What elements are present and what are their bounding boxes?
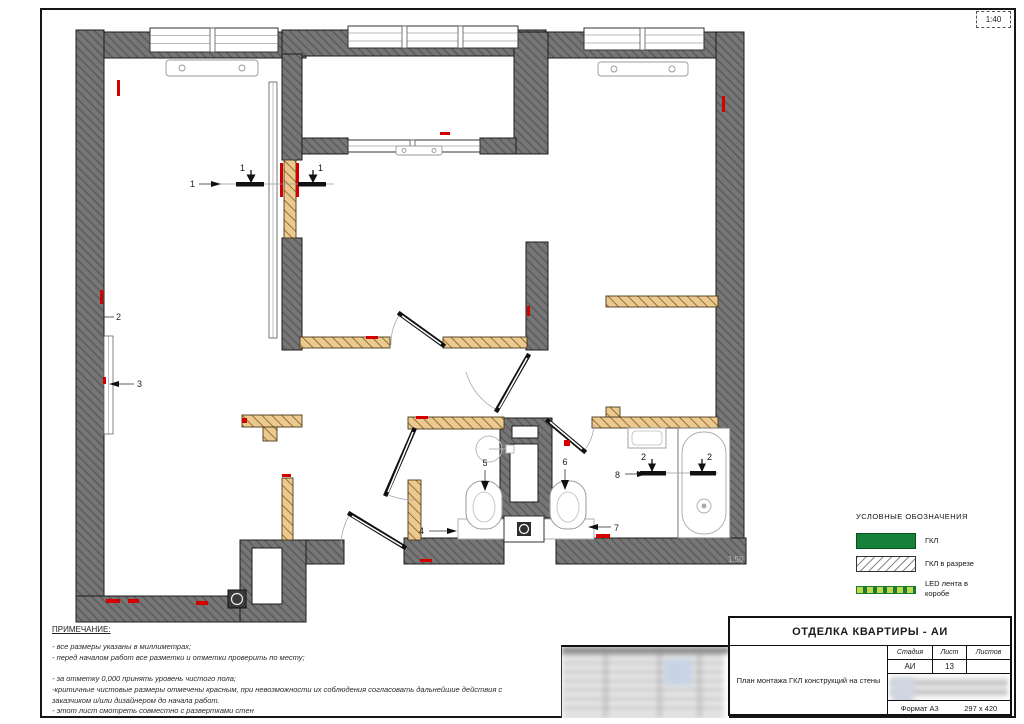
led-strip-swatch xyxy=(856,586,916,594)
legend-item-led: LED лента в коробе xyxy=(856,579,1012,599)
note-line: - перед началом работ все разметки и отм… xyxy=(52,653,522,664)
gkl-swatch xyxy=(856,533,916,549)
notes: ПРИМЕЧАНИЕ: - все размеры указаны в милл… xyxy=(52,625,522,717)
project-title: ОТДЕЛКА КВАРТИРЫ - АИ xyxy=(730,618,1010,646)
sheets-value xyxy=(967,660,1010,673)
legend-item-label: ГКЛ xyxy=(925,536,938,546)
note-line: - все размеры указаны в миллиметрах; xyxy=(52,642,522,653)
legend-item-gkl: ГКЛ xyxy=(856,533,1012,549)
legend-title: УСЛОВНЫЕ ОБОЗНАЧЕНИЯ xyxy=(856,512,1012,521)
title-block: ОТДЕЛКА КВАРТИРЫ - АИ План монтажа ГКЛ к… xyxy=(728,616,1012,716)
sheet-value: 13 xyxy=(933,660,967,673)
signature-stamp-blurred xyxy=(561,645,729,718)
stage-value: АИ xyxy=(888,660,933,673)
note-line: - этот лист смотреть совместно с разверт… xyxy=(52,706,522,717)
format-size: 297 x 420 xyxy=(951,704,1010,713)
sheet-header: Лист xyxy=(933,646,967,659)
sheet-frame xyxy=(40,8,1016,718)
notes-title: ПРИМЕЧАНИЕ: xyxy=(52,625,522,634)
note-line: -критичные чистовые размеры отмечены кра… xyxy=(52,685,522,707)
gkl-section-swatch xyxy=(856,556,916,572)
legend-item-gkl-section: ГКЛ в разрезе xyxy=(856,556,1012,572)
company-logo-blurred xyxy=(888,674,1010,701)
format-label: Формат А3 xyxy=(888,704,951,713)
note-line xyxy=(52,664,522,674)
sheets-header: Листов xyxy=(967,646,1010,659)
drawing-sheet: 1 1 2 2 1 2 xyxy=(0,0,1024,724)
stage-header: Стадия xyxy=(888,646,933,659)
legend: УСЛОВНЫЕ ОБОЗНАЧЕНИЯ ГКЛ ГКЛ в разрезе L… xyxy=(856,512,1012,606)
drawing-title: План монтажа ГКЛ конструкций на стены xyxy=(730,646,888,715)
legend-item-label: LED лента в коробе xyxy=(925,579,987,599)
scale-badge: 1:40 xyxy=(976,11,1011,28)
note-line: - за отметку 0,000 принять уровень чисто… xyxy=(52,674,522,685)
legend-item-label: ГКЛ в разрезе xyxy=(925,559,974,569)
